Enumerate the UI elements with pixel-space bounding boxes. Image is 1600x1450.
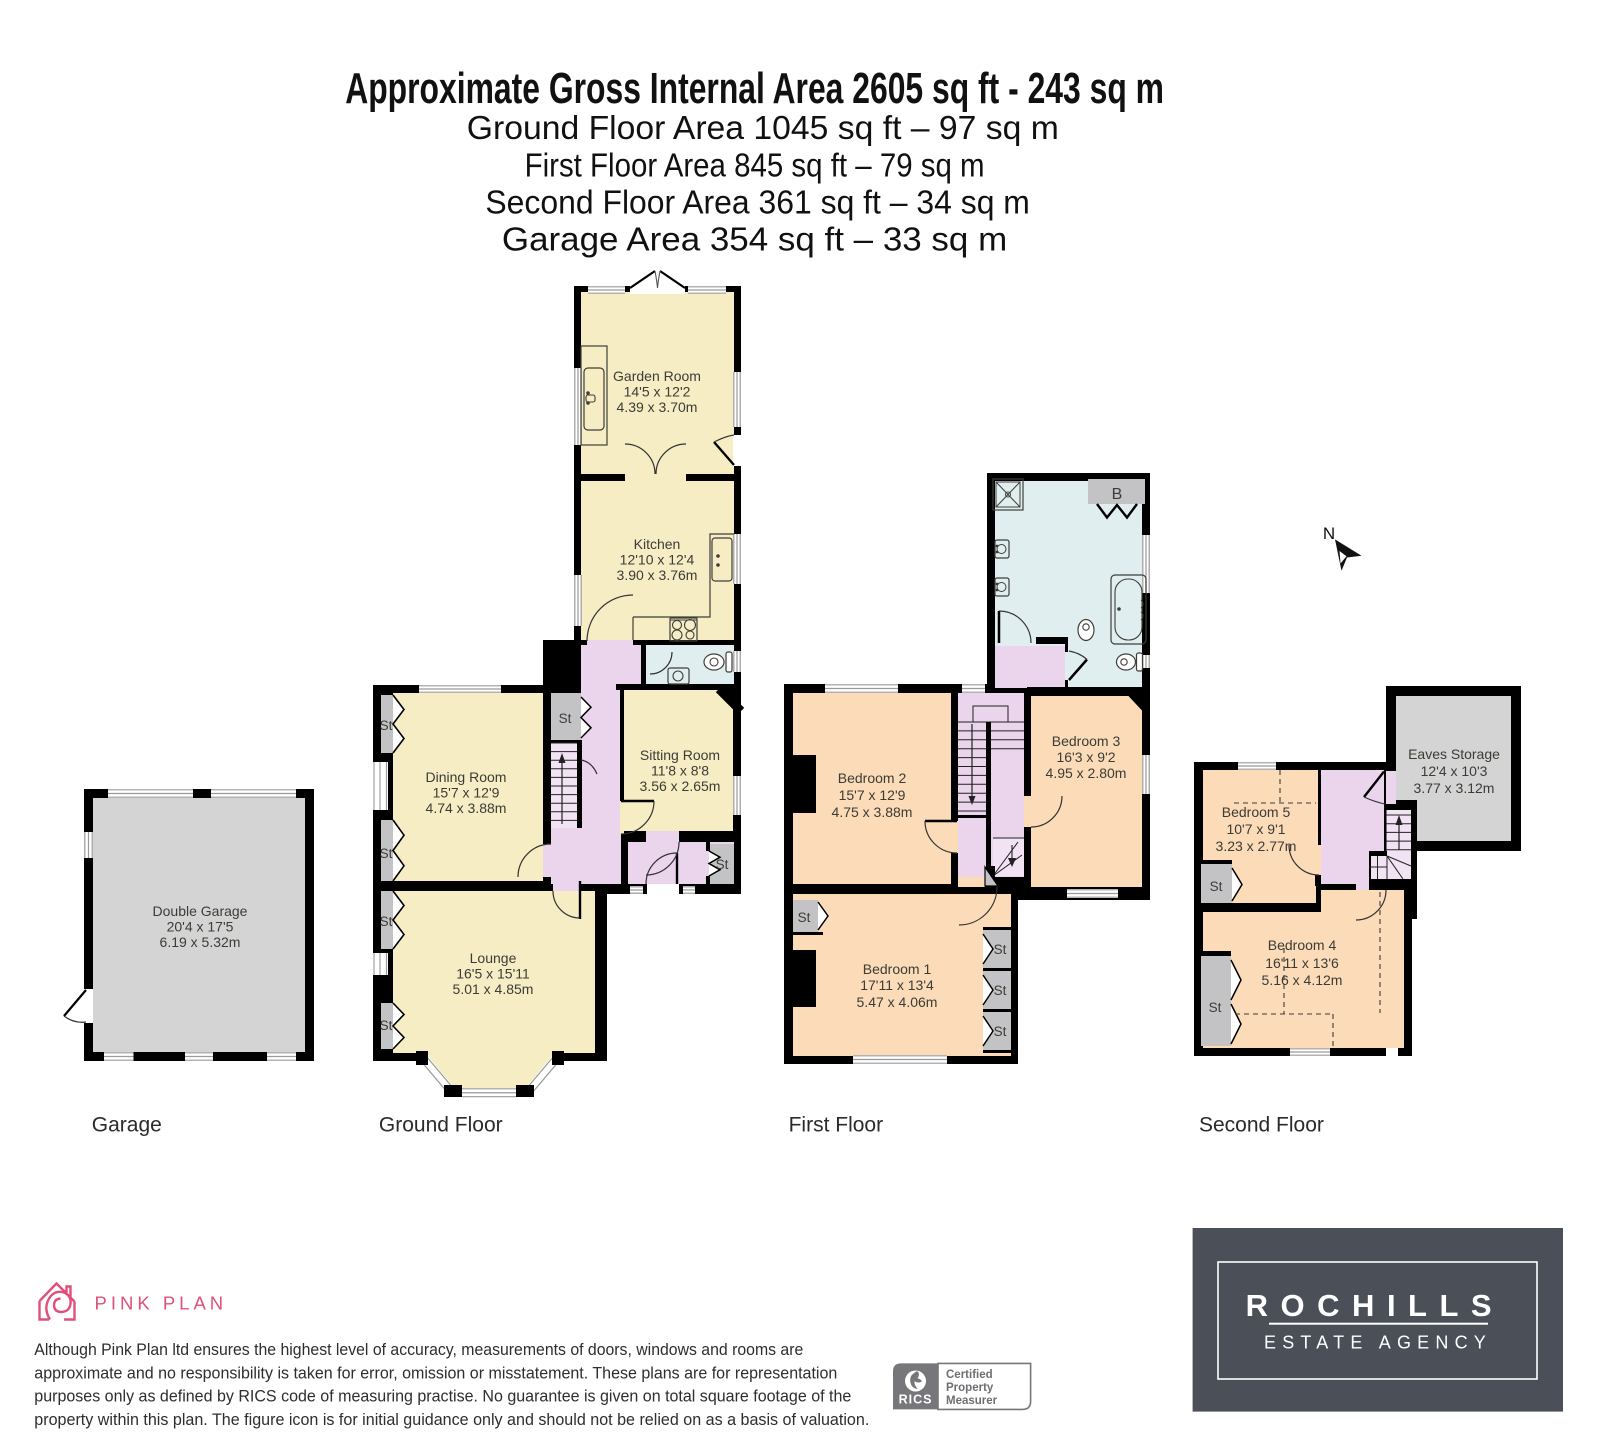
svg-text:5.47 x 4.06m: 5.47 x 4.06m [857,994,938,1010]
svg-text:St: St [380,718,393,733]
svg-text:Garden Room: Garden Room [613,368,701,384]
svg-text:St: St [380,846,393,861]
svg-text:Measurer: Measurer [946,1395,998,1407]
svg-text:St: St [380,914,393,929]
svg-text:3.56 x 2.65m: 3.56 x 2.65m [640,778,721,794]
svg-text:3.77 x 3.12m: 3.77 x 3.12m [1414,780,1495,796]
svg-text:Double Garage: Double Garage [153,903,248,919]
svg-text:3.23 x 2.77m: 3.23 x 2.77m [1216,838,1297,854]
svg-text:St: St [1210,879,1223,894]
svg-text:14'5 x 12'2: 14'5 x 12'2 [624,384,691,400]
svg-text:15'7 x 12'9: 15'7 x 12'9 [433,785,500,801]
svg-text:10'7 x 9'1: 10'7 x 9'1 [1226,821,1285,837]
svg-text:Sitting Room: Sitting Room [640,747,720,763]
svg-text:property within this plan. The: property within this plan. The figure ic… [34,1410,869,1429]
svg-text:4.95 x 2.80m: 4.95 x 2.80m [1046,765,1127,781]
svg-text:Garage: Garage [92,1114,162,1137]
svg-text:ROCHILLS: ROCHILLS [1246,1288,1504,1323]
svg-text:St: St [994,1024,1007,1039]
svg-text:12'10 x 12'4: 12'10 x 12'4 [620,552,695,568]
svg-text:approximate and no responsibil: approximate and no responsibility is tak… [34,1363,837,1382]
svg-text:Bedroom 5: Bedroom 5 [1222,804,1291,820]
svg-text:16'11 x 13'6: 16'11 x 13'6 [1265,955,1339,971]
svg-text:Second Floor Area 361 sq ft –: Second Floor Area 361 sq ft – 34 sq m [485,183,1030,220]
svg-text:Eaves Storage: Eaves Storage [1408,746,1500,762]
svg-text:5.16 x 4.12m: 5.16 x 4.12m [1262,972,1343,988]
svg-text:4.39 x 3.70m: 4.39 x 3.70m [617,399,698,415]
svg-text:Bedroom 3: Bedroom 3 [1052,733,1121,749]
svg-text:St: St [716,857,729,872]
svg-text:12'4 x 10'3: 12'4 x 10'3 [1421,763,1488,779]
svg-text:11'8 x 8'8: 11'8 x 8'8 [651,763,709,779]
svg-text:Bedroom 2: Bedroom 2 [838,770,907,786]
svg-text:PINK PLAN: PINK PLAN [95,1293,228,1314]
svg-text:B: B [1112,486,1123,503]
svg-text:Certified: Certified [946,1369,993,1381]
svg-text:Although Pink Plan ltd ensures: Although Pink Plan ltd ensures the highe… [34,1340,803,1359]
svg-text:St: St [1209,1000,1222,1015]
svg-text:ESTATE AGENCY: ESTATE AGENCY [1264,1333,1492,1353]
svg-text:Approximate Gross Internal Are: Approximate Gross Internal Area 2605 sq … [345,65,1164,113]
svg-text:Lounge: Lounge [470,950,517,966]
svg-text:Property: Property [946,1382,994,1394]
svg-text:St: St [380,1018,393,1033]
svg-text:6.19 x 5.32m: 6.19 x 5.32m [160,934,241,950]
svg-text:St: St [798,910,811,925]
svg-text:purposes only as defined by RI: purposes only as defined by RICS code of… [34,1387,851,1406]
svg-text:16'5 x 15'11: 16'5 x 15'11 [456,966,530,982]
svg-text:4.75 x 3.88m: 4.75 x 3.88m [832,804,913,820]
svg-text:Bedroom 4: Bedroom 4 [1268,937,1337,953]
svg-text:17'11 x 13'4: 17'11 x 13'4 [860,977,934,993]
svg-text:St: St [994,983,1007,998]
svg-text:4.74 x 3.88m: 4.74 x 3.88m [426,800,507,816]
svg-text:15'7 x 12'9: 15'7 x 12'9 [839,787,906,803]
svg-text:16'3 x 9'2: 16'3 x 9'2 [1056,749,1115,765]
svg-text:N: N [1323,524,1335,543]
svg-text:St: St [559,711,572,726]
svg-text:3.90 x 3.76m: 3.90 x 3.76m [617,567,698,583]
svg-text:5.01 x 4.85m: 5.01 x 4.85m [453,981,534,997]
svg-text:First Floor Area 845 sq ft – 7: First Floor Area 845 sq ft – 79 sq m [525,146,985,183]
svg-text:Second Floor: Second Floor [1199,1114,1324,1137]
svg-text:St: St [994,942,1007,957]
svg-text:Ground Floor Area 1045 sq ft –: Ground Floor Area 1045 sq ft – 97 sq m [467,109,1059,146]
svg-text:Bedroom 1: Bedroom 1 [863,961,932,977]
svg-text:20'4 x 17'5: 20'4 x 17'5 [167,919,234,935]
svg-text:Garage Area 354 sq ft – 33 sq: Garage Area 354 sq ft – 33 sq m [502,221,1007,258]
svg-text:Ground Floor: Ground Floor [379,1114,503,1137]
svg-text:Kitchen: Kitchen [634,536,681,552]
svg-text:Dining Room: Dining Room [426,769,507,785]
svg-text:First Floor: First Floor [789,1114,884,1137]
svg-text:RICS: RICS [899,1393,933,1407]
